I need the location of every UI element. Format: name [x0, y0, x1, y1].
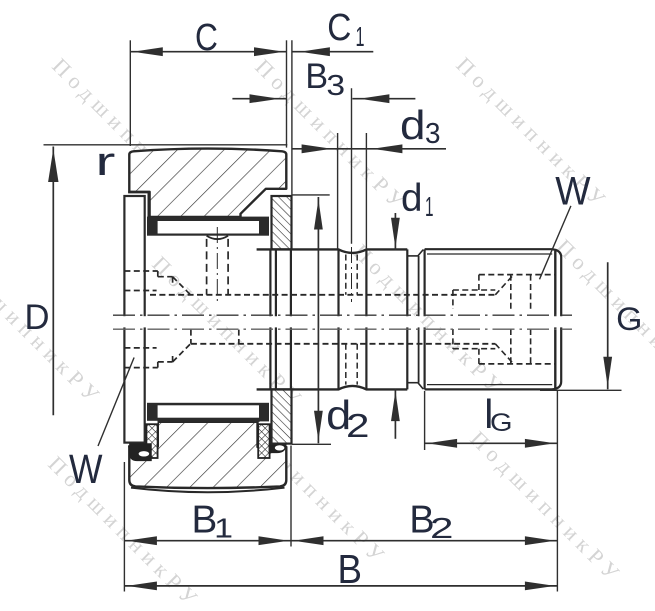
svg-text:B: B [338, 546, 363, 592]
svg-text:2: 2 [346, 407, 370, 444]
svg-text:C: C [195, 17, 218, 59]
svg-text:B: B [305, 56, 328, 96]
svg-text:r: r [95, 140, 115, 184]
svg-text:1: 1 [214, 512, 233, 543]
svg-text:2: 2 [430, 513, 454, 545]
svg-text:d: d [400, 102, 426, 148]
svg-text:G: G [490, 410, 513, 437]
svg-text:3: 3 [425, 118, 441, 150]
svg-text:1: 1 [356, 21, 365, 52]
svg-text:C: C [327, 7, 351, 49]
svg-text:D: D [25, 297, 50, 337]
svg-text:1: 1 [425, 191, 434, 222]
svg-text:d: d [401, 177, 423, 220]
svg-text:3: 3 [326, 70, 345, 102]
svg-text:W: W [69, 446, 103, 492]
svg-text:W: W [555, 169, 591, 213]
svg-text:G: G [616, 301, 642, 337]
